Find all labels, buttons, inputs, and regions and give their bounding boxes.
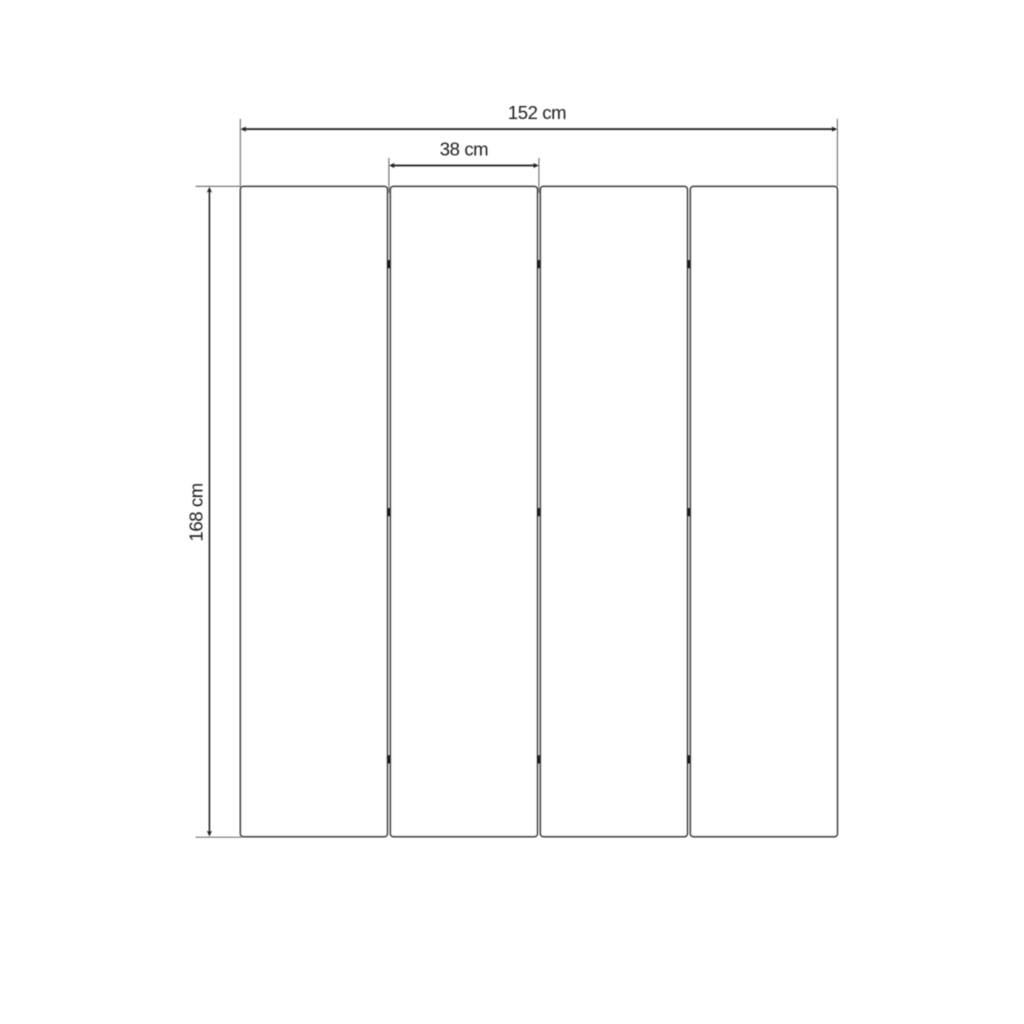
svg-text:168 cm: 168 cm bbox=[185, 483, 206, 541]
svg-text:152 cm: 152 cm bbox=[508, 102, 566, 123]
svg-text:38 cm: 38 cm bbox=[440, 138, 488, 159]
